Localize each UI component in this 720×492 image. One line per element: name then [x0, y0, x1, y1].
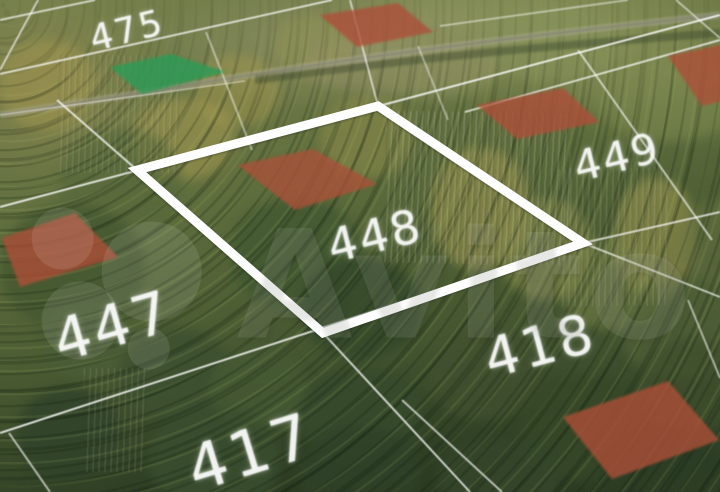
boundary-line	[402, 400, 502, 492]
boundary-line	[0, 0, 95, 20]
boundary-line	[57, 100, 137, 170]
red-plot-overlay	[320, 3, 433, 47]
red-plot-overlay	[238, 149, 377, 210]
boundary-line	[9, 433, 50, 492]
red-plot-overlay	[2, 213, 118, 287]
boundary-line	[0, 81, 245, 115]
boundary-line	[440, 0, 628, 26]
boundary-line	[583, 243, 720, 297]
red-plot-overlay	[563, 381, 719, 479]
boundary-line	[583, 212, 720, 243]
boundary-line	[0, 0, 38, 70]
plot-map-image[interactable]: 475 449 448 447 418 417 Avito	[0, 0, 720, 492]
boundary-line	[688, 300, 720, 378]
boundary-line	[206, 32, 252, 150]
boundary-line	[323, 333, 470, 492]
red-plot-overlay	[477, 88, 599, 139]
